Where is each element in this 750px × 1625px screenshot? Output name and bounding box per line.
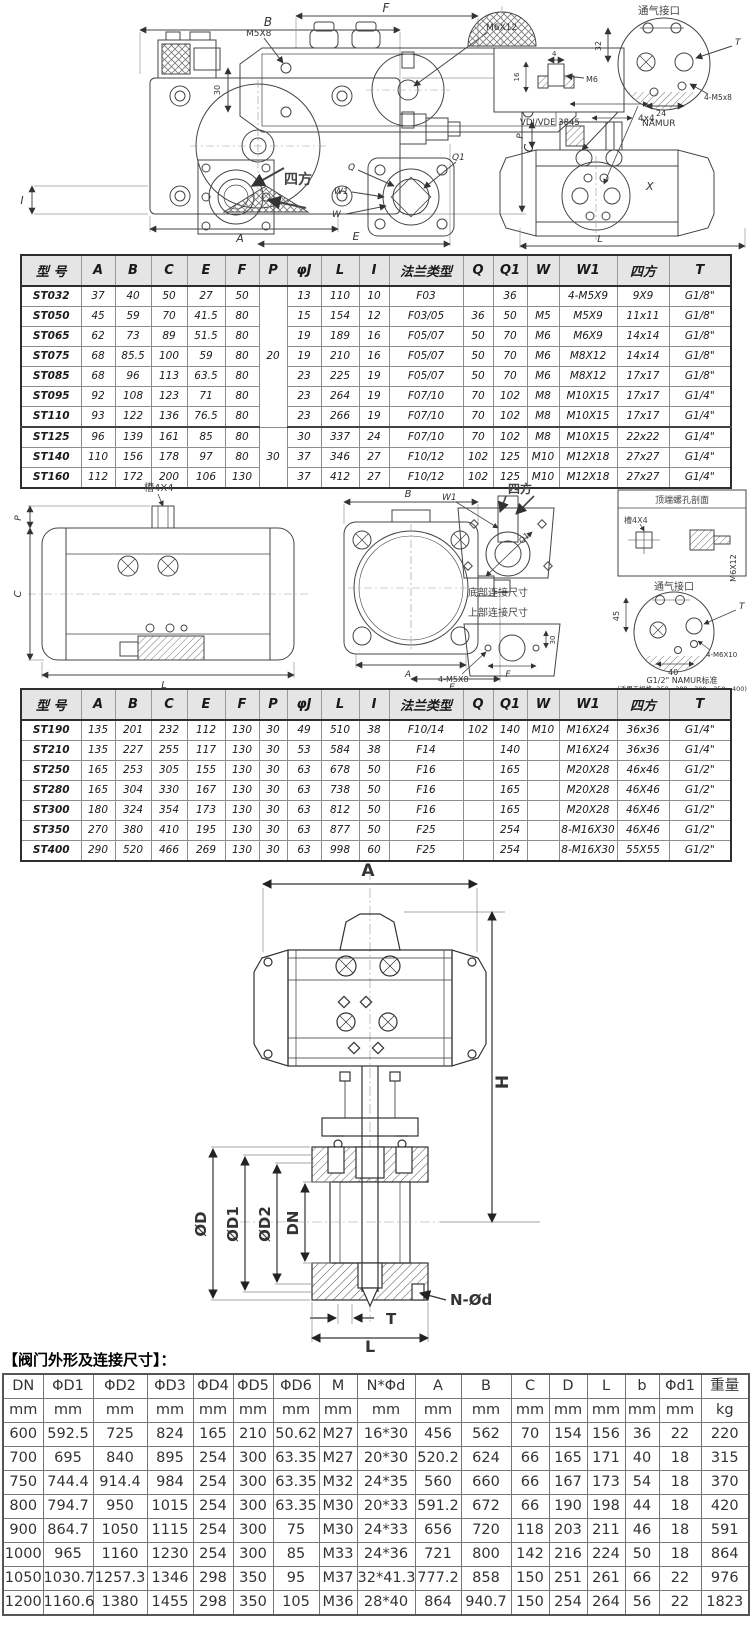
- table-cell: 1015: [147, 1495, 193, 1519]
- table-cell: 50: [225, 286, 259, 307]
- table-cell: 17x17: [617, 407, 669, 428]
- table-cell: 70: [463, 427, 493, 448]
- table-cell: 50: [463, 347, 493, 367]
- table-cell: ST210: [21, 741, 81, 761]
- column-header: 型 号: [21, 255, 81, 286]
- dim-c: C: [522, 143, 536, 152]
- table-row: 10501030.71257.3134629835095M3732*41.377…: [3, 1567, 749, 1591]
- table-cell: 130: [225, 761, 259, 781]
- table-cell: F07/10: [389, 427, 463, 448]
- column-header: P: [259, 255, 287, 286]
- table-row: ST05045597041.5801515412F03/053650M5M5X9…: [21, 307, 731, 327]
- table-cell: [527, 286, 559, 307]
- table-cell: 20*33: [357, 1495, 415, 1519]
- table-cell: 66: [625, 1567, 659, 1591]
- table-cell: 36x36: [617, 720, 669, 741]
- table-row: ST210135227255117130305358438F14140M16X2…: [21, 741, 731, 761]
- table-cell: 1230: [147, 1543, 193, 1567]
- label-vdivde: VDI/VDE 3845: [520, 118, 580, 128]
- table-row: ST06562738951.5801918916F05/075070M6M6X9…: [21, 327, 731, 347]
- table-cell: 28*40: [357, 1591, 415, 1616]
- table-cell: 53: [287, 741, 321, 761]
- table-cell: M37: [319, 1567, 357, 1591]
- table-cell: 154: [321, 307, 359, 327]
- table-cell: 130: [225, 741, 259, 761]
- table-cell: ST065: [21, 327, 81, 347]
- table-cell: 63.5: [187, 367, 225, 387]
- column-header: E: [187, 255, 225, 286]
- column-header: Φd1: [659, 1374, 701, 1399]
- table-cell: 315: [701, 1447, 749, 1471]
- table-cell: 965: [43, 1543, 93, 1567]
- label-x: X: [645, 180, 654, 193]
- table-row: ST0323740502750201311010F03364-M5X99X9G1…: [21, 286, 731, 307]
- table-cell: 253: [115, 761, 151, 781]
- label-namur-std: G1/2" NAMUR标准: [646, 675, 717, 685]
- table-cell: 154: [549, 1423, 587, 1447]
- table-cell: 195: [187, 821, 225, 841]
- table-cell: 350: [233, 1567, 273, 1591]
- dim-4: 4: [552, 50, 557, 58]
- table-cell: 18: [659, 1471, 701, 1495]
- table-cell: 150: [511, 1591, 549, 1616]
- dim-c: C: [13, 590, 24, 597]
- table-cell: 22: [659, 1567, 701, 1591]
- table-row: ST085689611363.5802322519F05/075070M6M8X…: [21, 367, 731, 387]
- table-cell: 13: [287, 286, 321, 307]
- table-cell: 102: [463, 448, 493, 468]
- column-header: b: [625, 1374, 659, 1399]
- column-header: φJ: [287, 255, 321, 286]
- label-4-m5x8: 4-M5x8: [704, 93, 732, 102]
- table-cell: 1455: [147, 1591, 193, 1616]
- table-cell: 330: [151, 781, 187, 801]
- table-cell: 14x14: [617, 327, 669, 347]
- label-sifang: 四方: [508, 481, 532, 496]
- table-cell: 700: [3, 1447, 43, 1471]
- table-cell: 4-M5X9: [559, 286, 617, 307]
- column-header: T: [669, 689, 731, 720]
- table-cell: 354: [151, 801, 187, 821]
- column-header: mm: [233, 1399, 273, 1423]
- table-cell: G1/8": [669, 347, 731, 367]
- table-cell: 914.4: [93, 1471, 147, 1495]
- table-cell: 50: [151, 286, 187, 307]
- table-cell: 1257.3: [93, 1567, 147, 1591]
- table-cell: 110: [321, 286, 359, 307]
- table-cell: M8: [527, 387, 559, 407]
- table-cell: 40: [625, 1447, 659, 1471]
- table-cell: 216: [549, 1543, 587, 1567]
- table-cell: 984: [147, 1471, 193, 1495]
- table-cell: 102: [493, 407, 527, 428]
- table-cell: 695: [43, 1447, 93, 1471]
- table-cell: [463, 761, 493, 781]
- table-cell: 50: [493, 307, 527, 327]
- table-cell: 18: [659, 1447, 701, 1471]
- table-cell: 41.5: [187, 307, 225, 327]
- table-cell: M8: [527, 427, 559, 448]
- table-cell: 227: [115, 741, 151, 761]
- table-cell: ST075: [21, 347, 81, 367]
- label-m6: M6: [586, 75, 598, 84]
- table-cell: M33: [319, 1543, 357, 1567]
- table-cell: 304: [115, 781, 151, 801]
- column-header: W: [527, 255, 559, 286]
- dim-32: 32: [594, 41, 603, 51]
- dim-b: B: [405, 489, 412, 500]
- table-cell: 858: [461, 1567, 511, 1591]
- table-cell: 23: [287, 367, 321, 387]
- table-cell: 36: [493, 286, 527, 307]
- table-cell: 113: [151, 367, 187, 387]
- table-cell: ST350: [21, 821, 81, 841]
- table-cell: M27: [319, 1447, 357, 1471]
- table-cell: ST095: [21, 387, 81, 407]
- table-cell: 12: [359, 307, 389, 327]
- table-cell: 254: [193, 1447, 233, 1471]
- valve-table-wrap: DNΦD1ΦD2ΦD3ΦD4ΦD5ΦD6MN*ΦdABCDLbΦd1重量mmmm…: [2, 1373, 750, 1616]
- dim-30: 30: [213, 85, 222, 95]
- table-cell: F03: [389, 286, 463, 307]
- table-cell: F07/10: [389, 407, 463, 428]
- table-cell: [463, 801, 493, 821]
- table-cell: 50: [359, 781, 389, 801]
- table-cell: G1/4": [669, 387, 731, 407]
- column-header: mm: [587, 1399, 625, 1423]
- table-cell: 45: [81, 307, 115, 327]
- table-cell: 80: [225, 367, 259, 387]
- dim-dn: DN: [284, 1210, 302, 1235]
- table-cell: 744.4: [43, 1471, 93, 1495]
- column-header: W1: [559, 689, 617, 720]
- table-cell: 38: [359, 720, 389, 741]
- spec-table-2-wrap: 型 号ABCEFPφJLI法兰类型QQ1WW1四方TST190135201232…: [20, 688, 730, 862]
- table-cell: 85: [273, 1543, 319, 1567]
- table-cell: 70: [151, 307, 187, 327]
- column-header: ΦD5: [233, 1374, 273, 1399]
- table-cell: 63.35: [273, 1495, 319, 1519]
- table-cell: M10: [527, 720, 559, 741]
- column-header: ΦD2: [93, 1374, 147, 1399]
- table-cell: 660: [461, 1471, 511, 1495]
- table-cell: 895: [147, 1447, 193, 1471]
- table-cell: 198: [587, 1495, 625, 1519]
- table-cell: 300: [233, 1543, 273, 1567]
- table-row: 800794.7950101525430063.35M3020*33591.26…: [3, 1495, 749, 1519]
- table-cell: 50: [359, 761, 389, 781]
- table-cell: 16: [359, 347, 389, 367]
- table-cell: 85.5: [115, 347, 151, 367]
- table-cell: 656: [415, 1519, 461, 1543]
- table-cell: 70: [493, 367, 527, 387]
- table-cell: 750: [3, 1471, 43, 1495]
- table-row: ST350270380410195130306387750F252548-M16…: [21, 821, 731, 841]
- column-header: φJ: [287, 689, 321, 720]
- table-cell: 254: [193, 1495, 233, 1519]
- column-header: W: [527, 689, 559, 720]
- table-cell: F14: [389, 741, 463, 761]
- label-4-m6x10: 4-M6X10: [706, 651, 737, 659]
- table-cell: 420: [701, 1495, 749, 1519]
- table-cell: 70: [511, 1423, 549, 1447]
- table-cell: M10X15: [559, 407, 617, 428]
- column-header: mm: [193, 1399, 233, 1423]
- table-cell: 1030.7: [43, 1567, 93, 1591]
- column-header: 法兰类型: [389, 689, 463, 720]
- column-header: mm: [43, 1399, 93, 1423]
- table-cell: 584: [321, 741, 359, 761]
- table-cell: 30: [259, 821, 287, 841]
- table-cell: 32*41.3: [357, 1567, 415, 1591]
- table-cell: 50: [359, 801, 389, 821]
- table-cell: 794.7: [43, 1495, 93, 1519]
- table-cell: 30: [287, 427, 321, 448]
- dim-p: P: [516, 133, 526, 139]
- table-cell: 346: [321, 448, 359, 468]
- table-cell: 201: [115, 720, 151, 741]
- table-cell: 30: [259, 720, 287, 741]
- table-cell: 118: [511, 1519, 549, 1543]
- table-cell: 203: [549, 1519, 587, 1543]
- label-m6x12: M6X12: [729, 554, 738, 582]
- column-header: C: [151, 255, 187, 286]
- table-cell: 23: [287, 407, 321, 428]
- label-m5x8: M5X8: [246, 29, 272, 39]
- table-cell: 80: [225, 307, 259, 327]
- table-cell: 63.35: [273, 1471, 319, 1495]
- table-row: 70069584089525430063.35M2720*30520.26246…: [3, 1447, 749, 1471]
- dim-od1: ØD1: [224, 1206, 242, 1242]
- column-header: mm: [549, 1399, 587, 1423]
- table-cell: 50: [359, 821, 389, 841]
- table-row: ST250165253305155130306367850F16165M20X2…: [21, 761, 731, 781]
- table-cell: 725: [93, 1423, 147, 1447]
- table-cell: 66: [511, 1447, 549, 1471]
- table-cell: 255: [151, 741, 187, 761]
- table-cell: 165: [549, 1447, 587, 1471]
- table-cell: 140: [493, 741, 527, 761]
- table-cell: 1000: [3, 1543, 43, 1567]
- table-cell: 520.2: [415, 1447, 461, 1471]
- actuator-drawing-top: B C I A E F M5X8 M6X12 30 四方 Q Q1 W1 W 4…: [0, 0, 750, 252]
- table-row: ST280165304330167130306373850F16165M20X2…: [21, 781, 731, 801]
- table-cell: 254: [193, 1519, 233, 1543]
- column-header: ΦD1: [43, 1374, 93, 1399]
- table-cell: 30: [259, 781, 287, 801]
- table-cell: 190: [549, 1495, 587, 1519]
- column-header: mm: [319, 1399, 357, 1423]
- table-cell: 678: [321, 761, 359, 781]
- table-cell: 864: [701, 1543, 749, 1567]
- table-cell: G1/2": [669, 821, 731, 841]
- table-cell: 97: [187, 448, 225, 468]
- table-cell: 50: [625, 1543, 659, 1567]
- table-cell: 254: [493, 821, 527, 841]
- table-cell: [463, 821, 493, 841]
- table-cell: [527, 761, 559, 781]
- column-header: I: [359, 689, 389, 720]
- table-cell: 11x11: [617, 307, 669, 327]
- table-cell: M16X24: [559, 720, 617, 741]
- table-cell: G1/8": [669, 286, 731, 307]
- table-cell: 14x14: [617, 347, 669, 367]
- table-cell: 777.2: [415, 1567, 461, 1591]
- table-cell: 68: [81, 367, 115, 387]
- table-cell: 102: [493, 427, 527, 448]
- table-cell: 105: [273, 1591, 319, 1616]
- dim-a: A: [235, 232, 244, 245]
- dim-n-od: N-Ød: [450, 1291, 492, 1309]
- table-cell: 720: [461, 1519, 511, 1543]
- label-vent-port: 通气接口: [638, 4, 680, 17]
- table-cell: 89: [151, 327, 187, 347]
- table-cell: 189: [321, 327, 359, 347]
- dim-l: L: [365, 1337, 375, 1352]
- table-cell: F03/05: [389, 307, 463, 327]
- dim-a: A: [361, 861, 375, 881]
- dim-l: L: [597, 234, 603, 245]
- table-row: 750744.4914.498425430063.35M3224*3556066…: [3, 1471, 749, 1495]
- table-cell: M32: [319, 1471, 357, 1495]
- table-cell: 66: [511, 1495, 549, 1519]
- table-cell: 46X46: [617, 781, 669, 801]
- column-header: DN: [3, 1374, 43, 1399]
- table-cell: 210: [233, 1423, 273, 1447]
- column-header: A: [81, 255, 115, 286]
- table-cell: 15: [287, 307, 321, 327]
- table-cell: 37: [81, 286, 115, 307]
- table-cell: 165: [493, 781, 527, 801]
- table-cell: 1200: [3, 1591, 43, 1616]
- table-cell: M10X15: [559, 427, 617, 448]
- table-cell: 37: [287, 448, 321, 468]
- table-cell: 232: [151, 720, 187, 741]
- dim-45: 45: [612, 611, 621, 621]
- table-cell: 63: [287, 801, 321, 821]
- column-header: C: [151, 689, 187, 720]
- table-cell: 370: [701, 1471, 749, 1495]
- table-cell: 117: [187, 741, 225, 761]
- table-cell: 49: [287, 720, 321, 741]
- table-cell: 85: [187, 427, 225, 448]
- column-header: ΦD4: [193, 1374, 233, 1399]
- table-cell: [463, 781, 493, 801]
- table-cell: 19: [359, 387, 389, 407]
- table-cell: 254: [193, 1543, 233, 1567]
- table-cell: 156: [115, 448, 151, 468]
- column-header: L: [587, 1374, 625, 1399]
- table-cell: F16: [389, 761, 463, 781]
- table-cell: M8X12: [559, 347, 617, 367]
- label-sifang: 四方: [284, 171, 312, 188]
- table-row: ST14011015617897803734627F10/12102125M10…: [21, 448, 731, 468]
- table-cell: 24*36: [357, 1543, 415, 1567]
- table-cell: 80: [225, 387, 259, 407]
- table-cell: ST110: [21, 407, 81, 428]
- table-cell: 840: [93, 1447, 147, 1471]
- table-row: 900864.71050111525430075M3024*3365672011…: [3, 1519, 749, 1543]
- column-header: L: [321, 255, 359, 286]
- table-cell: 591: [701, 1519, 749, 1543]
- table-cell: F16: [389, 801, 463, 821]
- table-cell: 560: [415, 1471, 461, 1495]
- table-cell: F10/14: [389, 720, 463, 741]
- table-cell: 80: [225, 407, 259, 428]
- table-cell: ST190: [21, 720, 81, 741]
- table-cell: 380: [115, 821, 151, 841]
- table-cell: 123: [151, 387, 187, 407]
- table-cell: 80: [225, 347, 259, 367]
- table-cell: 324: [115, 801, 151, 821]
- table-cell: 9X9: [617, 286, 669, 307]
- table-cell: 300: [233, 1447, 273, 1471]
- column-header: L: [321, 689, 359, 720]
- table-cell: 167: [187, 781, 225, 801]
- table-cell: M6X9: [559, 327, 617, 347]
- column-header: mm: [659, 1399, 701, 1423]
- table-cell: M16X24: [559, 741, 617, 761]
- column-header: mm: [93, 1399, 147, 1423]
- actuator-spec-table-large: 型 号ABCEFPφJLI法兰类型QQ1WW1四方TST190135201232…: [20, 688, 732, 862]
- table-cell: F25: [389, 821, 463, 841]
- table-cell: 562: [461, 1423, 511, 1447]
- table-cell: 108: [115, 387, 151, 407]
- table-cell: 337: [321, 427, 359, 448]
- table-cell: 140: [493, 720, 527, 741]
- table-cell: 125: [493, 448, 527, 468]
- table-cell: 22: [659, 1423, 701, 1447]
- table-cell: 721: [415, 1543, 461, 1567]
- table-cell: M20X28: [559, 801, 617, 821]
- table-cell: 165: [81, 761, 115, 781]
- table-row: ST0756885.510059801921016F05/075070M6M8X…: [21, 347, 731, 367]
- table-cell: 173: [587, 1471, 625, 1495]
- table-cell: 75: [273, 1519, 319, 1543]
- label-q1: Q1: [517, 531, 531, 545]
- table-cell: 30: [259, 761, 287, 781]
- table-cell: 800: [461, 1543, 511, 1567]
- label-m6x12: M6X12: [486, 23, 517, 33]
- column-header: F: [225, 689, 259, 720]
- table-cell: 102: [493, 387, 527, 407]
- dim-24: 24: [656, 109, 666, 118]
- table-cell: 824: [147, 1423, 193, 1447]
- table-cell: 135: [81, 720, 115, 741]
- dim-p: P: [14, 515, 24, 521]
- table-cell: 165: [493, 761, 527, 781]
- table-cell: 298: [193, 1567, 233, 1591]
- table-cell: 1160.6: [43, 1591, 93, 1616]
- table-cell: 46X46: [617, 801, 669, 821]
- table-cell: 66: [511, 1471, 549, 1495]
- column-header: mm: [461, 1399, 511, 1423]
- column-header: W1: [559, 255, 617, 286]
- table-cell: 591.2: [415, 1495, 461, 1519]
- table-cell: 1050: [93, 1519, 147, 1543]
- table-cell: [463, 741, 493, 761]
- table-cell: 63: [287, 781, 321, 801]
- table-cell: 96: [81, 427, 115, 448]
- table-cell: 50: [463, 367, 493, 387]
- table-cell: 23: [287, 387, 321, 407]
- table-cell: 16: [359, 327, 389, 347]
- spec-table-1-wrap: 型 号ABCEFPφJLI法兰类型QQ1WW1四方TST032374050275…: [20, 254, 730, 489]
- table-cell: 270: [81, 821, 115, 841]
- table-cell: 254: [193, 1471, 233, 1495]
- table-cell: 165: [493, 801, 527, 821]
- table-cell: 68: [81, 347, 115, 367]
